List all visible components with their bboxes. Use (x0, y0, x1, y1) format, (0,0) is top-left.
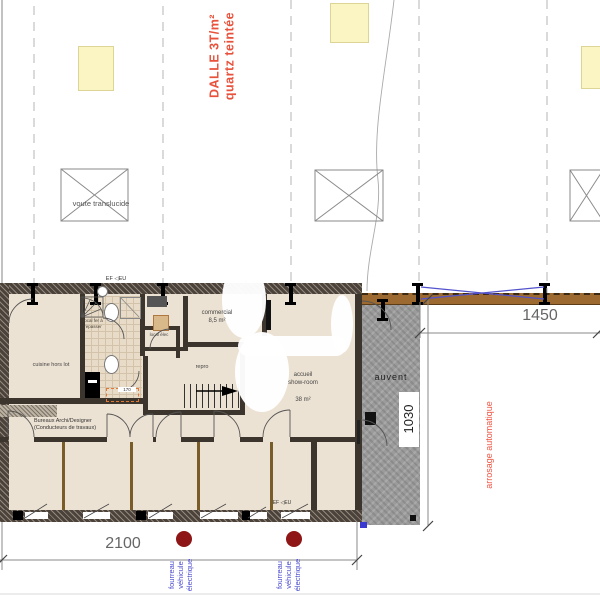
room-label-ironing: local fer à repasser (76, 318, 110, 329)
slab-note-line1: DALLE 3T/m² (208, 14, 223, 98)
room-label-accueil: accueil show-room (275, 371, 331, 387)
slab-note-line2: quartz teintée (223, 12, 238, 100)
boundary-curve (367, 0, 394, 291)
room-label-ironing-l2: repasser (76, 324, 110, 330)
fourreau-label: fourreau véhicule électrique (165, 547, 195, 600)
winder-stair-icon (81, 297, 103, 317)
fourreau-l1: fourreau (275, 561, 284, 589)
room-label-cuisine: cuisine hors lot (18, 362, 84, 369)
room-label-repro: repro (184, 364, 220, 371)
watermark-blob (222, 262, 266, 338)
ef-eu-label: EF ◁EU (262, 500, 302, 506)
arrosage-label: arrosage automatique (483, 390, 495, 500)
room-label-bureaux-l1: Bureaux Archi/Designer (34, 418, 144, 425)
fourreau-l2: véhicule (284, 561, 293, 589)
watermark-blob (238, 336, 346, 356)
dim-170-label: 170 (118, 387, 136, 392)
casement-line (25, 504, 308, 518)
vault-label: voute translucide (55, 199, 147, 208)
room-label-accueil-area: 38 m² (275, 397, 331, 404)
room-label-local-elec: local élec (142, 332, 176, 337)
fourreau-l3: électrique (185, 559, 194, 592)
grid-line (34, 0, 547, 293)
dimension-1030: 1030 (399, 392, 419, 447)
floor-plan-drawing: DALLE 3T/m² quartz teintée voute translu… (0, 0, 600, 600)
room-label-accueil-l1: accueil (275, 371, 331, 379)
ef-eu-label: EF ◁EU (96, 276, 136, 283)
fourreau-l2: véhicule (176, 561, 185, 589)
plan-linework (0, 0, 600, 600)
fourreau-l1: fourreau (167, 561, 176, 589)
room-label-auvent: auvent (367, 372, 415, 383)
dimension-2100: 2100 (60, 535, 186, 553)
gate-cross-icon (421, 287, 544, 299)
fourreau-label: fourreau véhicule électrique (273, 547, 303, 600)
slab-note: DALLE 3T/m² quartz teintée (205, 0, 241, 114)
room-label-bureaux: Bureaux Archi/Designer (Conducteurs de t… (34, 418, 144, 433)
fourreau-l3: électrique (293, 559, 302, 592)
room-label-commercial-area: 8,5 m² (188, 318, 246, 326)
room-label-commercial: commercial 8,5 m² (188, 310, 246, 326)
room-label-bureaux-l2: (Conducteurs de travaux) (34, 425, 144, 432)
dimension-1450: 1450 (478, 307, 600, 325)
dimension-1030-text: 1030 (399, 392, 419, 446)
shower-diagonal (120, 297, 139, 317)
vault-rect (61, 169, 600, 221)
room-label-accueil-l2: show-room (275, 379, 331, 387)
room-label-commercial-name: commercial (188, 310, 246, 318)
